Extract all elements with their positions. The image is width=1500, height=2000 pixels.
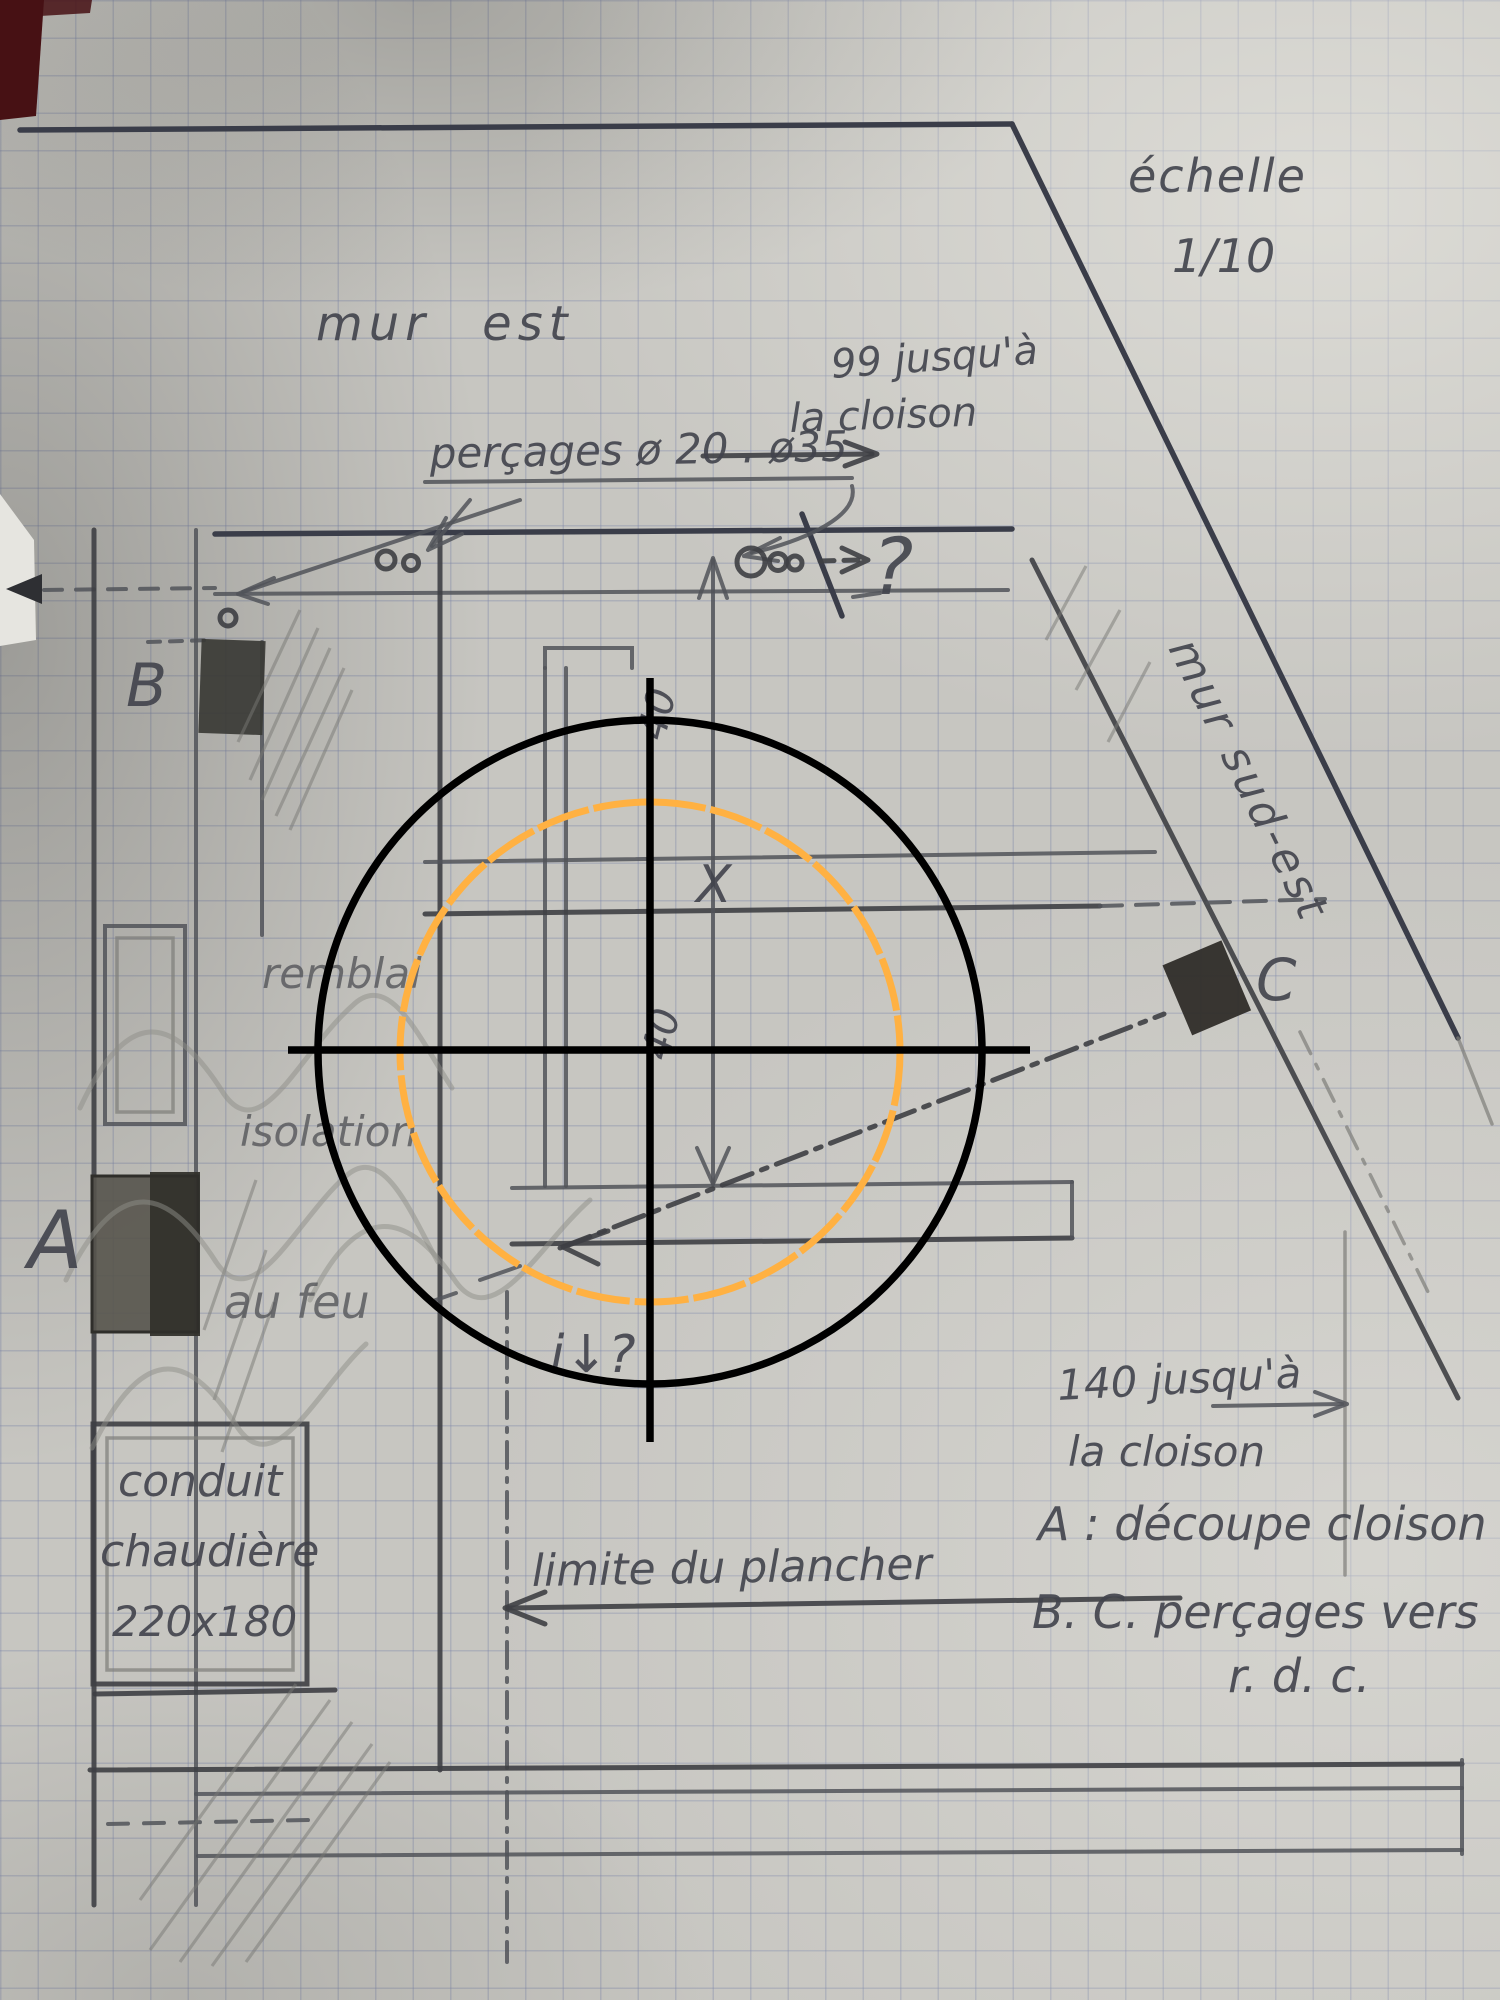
legend-bc: B. C. perçages vers (1032, 1585, 1479, 1639)
southeast-wall-label: mur sud-est (1158, 630, 1339, 930)
point-c-label: C (1256, 946, 1297, 1014)
point-a-label: A (23, 1194, 83, 1287)
photo-of-sketch: échelle 1/10 mur est perçages ø 20 . ø35… (0, 0, 1500, 2000)
left-edge-arrow (0, 494, 215, 646)
dim-99-line1: 99 jusqu'à (829, 328, 1039, 388)
measure-40-lower: 40 (633, 1004, 690, 1065)
fire-label: au feu (224, 1275, 370, 1329)
dim-140-line1: 140 jusqu'à (1056, 1348, 1302, 1410)
legend-a: A : découpe cloison (1035, 1497, 1487, 1551)
conduit-line2: chaudière (100, 1526, 319, 1577)
southeast-wall-axis (1300, 1032, 1428, 1292)
scale-value: 1/10 (1172, 229, 1275, 283)
drill-point-b-block (198, 639, 265, 735)
cutout-a-block (92, 1172, 200, 1336)
sketch-drawing: échelle 1/10 mur est perçages ø 20 . ø35… (0, 0, 1500, 2000)
x-mark: X (693, 855, 733, 915)
conduit-size: 220x180 (112, 1597, 297, 1646)
scale-label: échelle (1128, 149, 1307, 203)
dim-140-line2: la cloison (1068, 1427, 1265, 1476)
east-wall-label: mur est (316, 296, 574, 352)
drill-axis-line (430, 1014, 1164, 1302)
hatching (140, 566, 1150, 1966)
measure-40-upper: 40 (629, 684, 686, 745)
legend-bc-2: r. d. c. (1228, 1649, 1370, 1703)
southeast-wall-line (1032, 560, 1458, 1398)
drillings-note: perçages ø 20 . ø35 (428, 422, 848, 478)
wall-opening (105, 926, 185, 1124)
arrowhead-icon (238, 578, 274, 604)
bottom-wall-lines (90, 1760, 1462, 1856)
point-b-label: B (126, 651, 167, 721)
backfill-label: remblai (262, 949, 422, 998)
dim-99-line2: la cloison (789, 389, 978, 442)
drill-label-pointers (238, 478, 853, 604)
photo-corner-artifact (0, 0, 92, 120)
drill-point-c-block (1162, 940, 1251, 1035)
question-mark-top: ? (872, 523, 913, 613)
floor-limit-label: limite du plancher (531, 1539, 935, 1597)
conduit-line1: conduit (118, 1456, 284, 1507)
